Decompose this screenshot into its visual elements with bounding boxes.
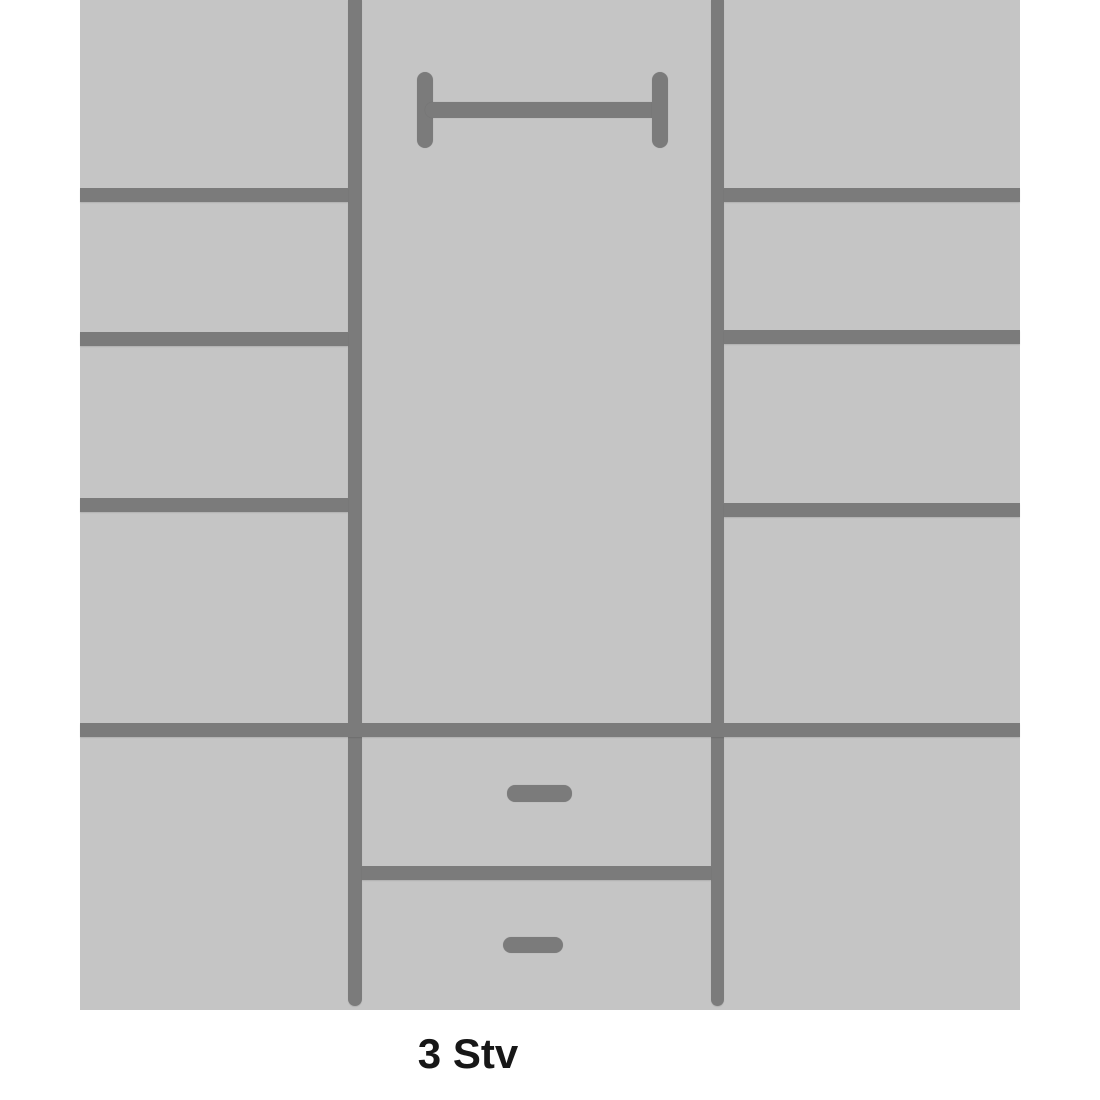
left-shelf-line-1 (80, 188, 348, 202)
bottom-section-top-line (80, 723, 1020, 737)
wardrobe-diagram: 3 Stv (0, 0, 1100, 1100)
left-shelf-line-2 (80, 332, 348, 346)
right-vertical-divider (711, 0, 724, 1006)
right-shelf-line-1 (724, 188, 1020, 202)
caption-label: 3 Stv (318, 1030, 618, 1078)
left-shelf-line-3 (80, 498, 348, 512)
clothes-rail-right-cap-icon (652, 72, 668, 148)
drawer-handle-2-icon (503, 937, 563, 953)
right-shelf-line-3 (724, 503, 1020, 517)
drawer-handle-1-icon (507, 785, 572, 802)
left-vertical-divider (348, 0, 362, 1006)
right-shelf-line-2 (724, 330, 1020, 344)
clothes-rail-bar-icon (425, 102, 660, 118)
drawer-divider-line (362, 866, 711, 880)
